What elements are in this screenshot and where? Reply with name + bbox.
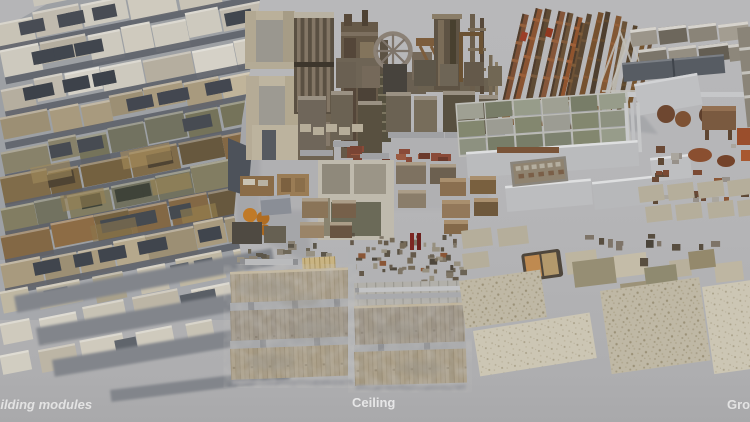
svg-text:Building modules: Building modules (0, 397, 92, 412)
svg-text:Ground: Ground (727, 397, 750, 412)
svg-text:Ceiling: Ceiling (352, 395, 395, 410)
